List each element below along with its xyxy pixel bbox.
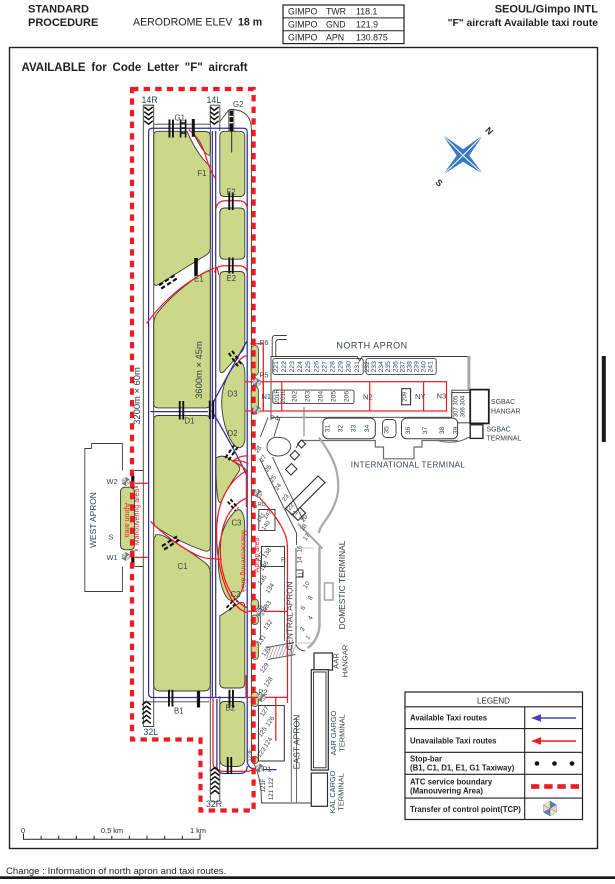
svg-text:230: 230 [346, 361, 353, 373]
svg-text:224: 224 [297, 361, 304, 373]
svg-text:DOMESTIC TERMINAL: DOMESTIC TERMINAL [337, 540, 347, 629]
svg-text:APN: APN [326, 32, 344, 42]
svg-text:N3: N3 [437, 392, 447, 401]
svg-text:306 304: 306 304 [461, 395, 467, 417]
svg-text:N2: N2 [363, 393, 373, 402]
svg-text:PROCEDURE: PROCEDURE [28, 17, 98, 29]
svg-text:123F: 123F [248, 748, 254, 762]
svg-text:GIMPO: GIMPO [288, 20, 317, 30]
svg-text:233: 233 [371, 361, 378, 373]
svg-text:SEOUL/Gimpo INTL: SEOUL/Gimpo INTL [495, 4, 599, 16]
svg-text:226: 226 [313, 361, 320, 373]
svg-text:(B1, C1, D1, E1, G1 Taxiway): (B1, C1, D1, E1, G1 Taxiway) [410, 764, 515, 773]
svg-text:33: 33 [351, 425, 358, 433]
svg-text:LEGEND: LEGEND [477, 697, 510, 706]
svg-text:HANGAR: HANGAR [341, 644, 350, 677]
svg-text:0.5 km: 0.5 km [101, 826, 123, 835]
svg-text:Manoeuvering area: Manoeuvering area [240, 530, 249, 592]
svg-text:205: 205 [331, 391, 338, 403]
svg-text:11: 11 [298, 571, 305, 578]
svg-text:Unavailable Taxi routes: Unavailable Taxi routes [410, 737, 497, 746]
svg-text:C1: C1 [178, 562, 188, 571]
svg-text:D2: D2 [228, 429, 238, 438]
svg-text:WEST APRON: WEST APRON [88, 492, 98, 548]
svg-text:223: 223 [289, 361, 296, 373]
svg-text:C2: C2 [231, 590, 241, 599]
svg-text:234: 234 [378, 361, 385, 373]
svg-text:225: 225 [305, 361, 312, 373]
svg-text:31: 31 [325, 425, 332, 433]
svg-text:STANDARD: STANDARD [28, 4, 89, 16]
svg-text:E2: E2 [227, 274, 237, 283]
svg-text:AERODROME ELEV: AERODROME ELEV [133, 17, 233, 29]
svg-text:G2: G2 [233, 100, 243, 109]
svg-text:F1: F1 [198, 169, 207, 178]
svg-text:Available Taxi routes: Available Taxi routes [410, 714, 488, 723]
svg-text:NORTH APRON: NORTH APRON [336, 341, 407, 351]
svg-text:GIMPO: GIMPO [288, 7, 317, 17]
svg-text:TERMINAL: TERMINAL [337, 773, 346, 810]
svg-text:B2: B2 [226, 704, 236, 713]
svg-text:32: 32 [338, 425, 345, 433]
svg-text:130.875: 130.875 [356, 32, 388, 42]
svg-text:202: 202 [292, 391, 299, 403]
svg-text:P4: P4 [270, 414, 279, 423]
svg-text:D1: D1 [185, 417, 195, 426]
svg-text:307 305: 307 305 [454, 395, 460, 417]
svg-text:W2: W2 [107, 477, 118, 486]
svg-text:204: 204 [318, 391, 325, 403]
svg-text:14: 14 [297, 556, 304, 564]
svg-text:209: 209 [402, 391, 408, 402]
svg-text:TERMINAL: TERMINAL [487, 436, 522, 443]
svg-text:34: 34 [364, 425, 371, 433]
svg-text:Stop-bar: Stop-bar [410, 755, 442, 764]
svg-text:0: 0 [21, 826, 25, 835]
svg-text:INTERNATIONAL TERMINAL: INTERNATIONAL TERMINAL [351, 461, 466, 470]
svg-text:32L: 32L [144, 727, 159, 737]
svg-text:C3: C3 [232, 519, 242, 528]
svg-text:S: S [109, 533, 114, 542]
svg-text:D3: D3 [228, 390, 238, 399]
svg-text:TERMINAL: TERMINAL [338, 714, 347, 751]
svg-text:F2: F2 [227, 188, 236, 197]
svg-text:240: 240 [421, 361, 428, 373]
svg-text:EAST APRON: EAST APRON [292, 715, 302, 770]
svg-text:221: 221 [273, 361, 280, 373]
svg-text:Apron area: Apron area [123, 503, 130, 538]
svg-text:241: 241 [428, 361, 435, 373]
svg-text:AAR: AAR [332, 653, 341, 669]
svg-text:R: R [281, 557, 286, 564]
svg-text:"F" aircraft Available taxi ro: "F" aircraft Available taxi route [448, 18, 599, 29]
svg-text:231: 231 [354, 361, 361, 373]
svg-text:ATC service boundary: ATC service boundary [410, 778, 493, 787]
svg-text:W1: W1 [107, 553, 118, 562]
svg-text:14R: 14R [142, 95, 158, 105]
svg-text:HANGAR: HANGAR [491, 409, 521, 416]
svg-text:237: 237 [399, 361, 406, 373]
svg-text:GIMPO: GIMPO [288, 32, 317, 42]
svg-text:P2: P2 [259, 688, 268, 697]
svg-text:37: 37 [422, 427, 429, 435]
svg-text:NY: NY [415, 392, 426, 401]
svg-text:35: 35 [384, 426, 391, 434]
svg-text:121 122: 121 122 [268, 777, 275, 800]
svg-text:N1: N1 [262, 392, 271, 401]
svg-text:239: 239 [413, 361, 420, 373]
svg-text:(Manouvering Area): (Manouvering Area) [410, 787, 483, 796]
svg-text:TWR: TWR [326, 7, 346, 17]
svg-text:1 km: 1 km [190, 826, 206, 835]
svg-text:238: 238 [406, 361, 413, 373]
svg-text:Change : Information of north: Change : Information of north apron and … [6, 866, 226, 877]
svg-text:Transfer of control point(TCP): Transfer of control point(TCP) [410, 805, 521, 814]
svg-text:3200m × 60m: 3200m × 60m [131, 367, 142, 425]
svg-text:235: 235 [385, 361, 392, 373]
svg-text:229: 229 [338, 361, 345, 373]
svg-text:SGBAC: SGBAC [487, 427, 511, 434]
svg-text:AVAILABLE for Code Letter "F": AVAILABLE for Code Letter "F" aircraft [22, 62, 248, 74]
svg-text:14L: 14L [207, 95, 222, 105]
svg-text:E1: E1 [194, 275, 204, 284]
svg-text:P: P [253, 505, 257, 512]
svg-text:P5: P5 [260, 371, 269, 380]
svg-text:203: 203 [305, 391, 312, 403]
svg-text:P1: P1 [263, 765, 272, 774]
svg-text:RD: RD [258, 502, 266, 508]
svg-text:32R: 32R [206, 799, 222, 809]
svg-text:232: 232 [364, 361, 371, 373]
svg-text:B1: B1 [174, 707, 184, 716]
svg-text:236: 236 [392, 361, 399, 373]
svg-text:39: 39 [453, 427, 460, 435]
svg-text:228: 228 [330, 361, 337, 373]
svg-text:G1: G1 [175, 114, 185, 123]
svg-text:3600m × 45m: 3600m × 45m [193, 341, 204, 399]
svg-text:121F: 121F [260, 778, 267, 792]
svg-text:222: 222 [281, 361, 288, 373]
svg-text:206: 206 [344, 391, 351, 403]
svg-text:GND: GND [326, 20, 346, 30]
svg-text:P6: P6 [260, 338, 269, 347]
svg-text:SGBAC: SGBAC [491, 399, 515, 406]
svg-text:CENTRAL APRON: CENTRAL APRON [286, 581, 295, 650]
svg-text:118.1: 118.1 [356, 7, 377, 17]
svg-text:121.9: 121.9 [356, 20, 378, 30]
svg-text:201L: 201L [280, 389, 287, 403]
svg-text:16: 16 [297, 545, 304, 553]
svg-text:227: 227 [321, 361, 328, 373]
svg-text:36: 36 [405, 427, 412, 435]
svg-text:Manouvering area: Manouvering area [134, 489, 141, 546]
svg-text:38: 38 [439, 427, 446, 435]
svg-text:18 m: 18 m [238, 17, 262, 29]
